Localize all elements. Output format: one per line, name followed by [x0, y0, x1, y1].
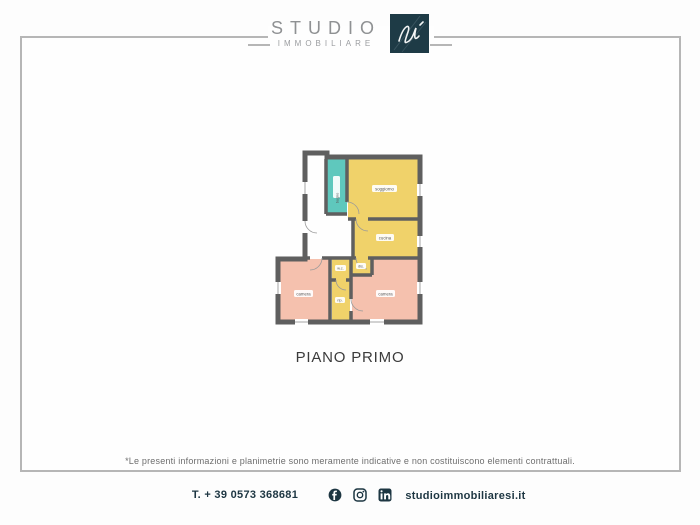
label-rip: rip. — [337, 299, 342, 303]
label-wc: w.c. — [337, 267, 344, 271]
label-camera-left: camera — [296, 291, 311, 296]
agency-logo: STUDIO IMMOBILIARE — [0, 14, 700, 53]
agency-logo-text: STUDIO IMMOBILIARE — [271, 18, 381, 49]
footer-website[interactable]: studioimmobiliaresi.it — [398, 490, 533, 502]
logo-studio-text: STUDIO — [271, 18, 381, 38]
instagram-icon[interactable] — [353, 488, 367, 502]
footer-social-icons — [328, 488, 392, 502]
floor-title: PIANO PRIMO — [0, 349, 700, 366]
label-cucina: cucina — [379, 235, 392, 240]
label-dis: dis. — [358, 265, 364, 269]
signature-icon — [390, 14, 429, 53]
label-soggiorno: soggiorno — [375, 186, 394, 191]
facebook-icon[interactable] — [328, 488, 342, 502]
label-camera-right: camera — [378, 291, 393, 296]
logo-monogram-icon — [390, 14, 429, 53]
floor-plan: soggiorno bagno cucina camera camera w.c… — [268, 146, 428, 330]
footer-phone: T. + 39 0573 368681 — [150, 489, 340, 501]
page: STUDIO IMMOBILIARE — [0, 0, 700, 525]
disclaimer-text: *Le presenti informazioni e planimetrie … — [0, 456, 700, 466]
logo-immobiliare-text: IMMOBILIARE — [278, 38, 374, 49]
label-bagno: bagno — [335, 193, 339, 204]
linkedin-icon[interactable] — [378, 488, 392, 502]
